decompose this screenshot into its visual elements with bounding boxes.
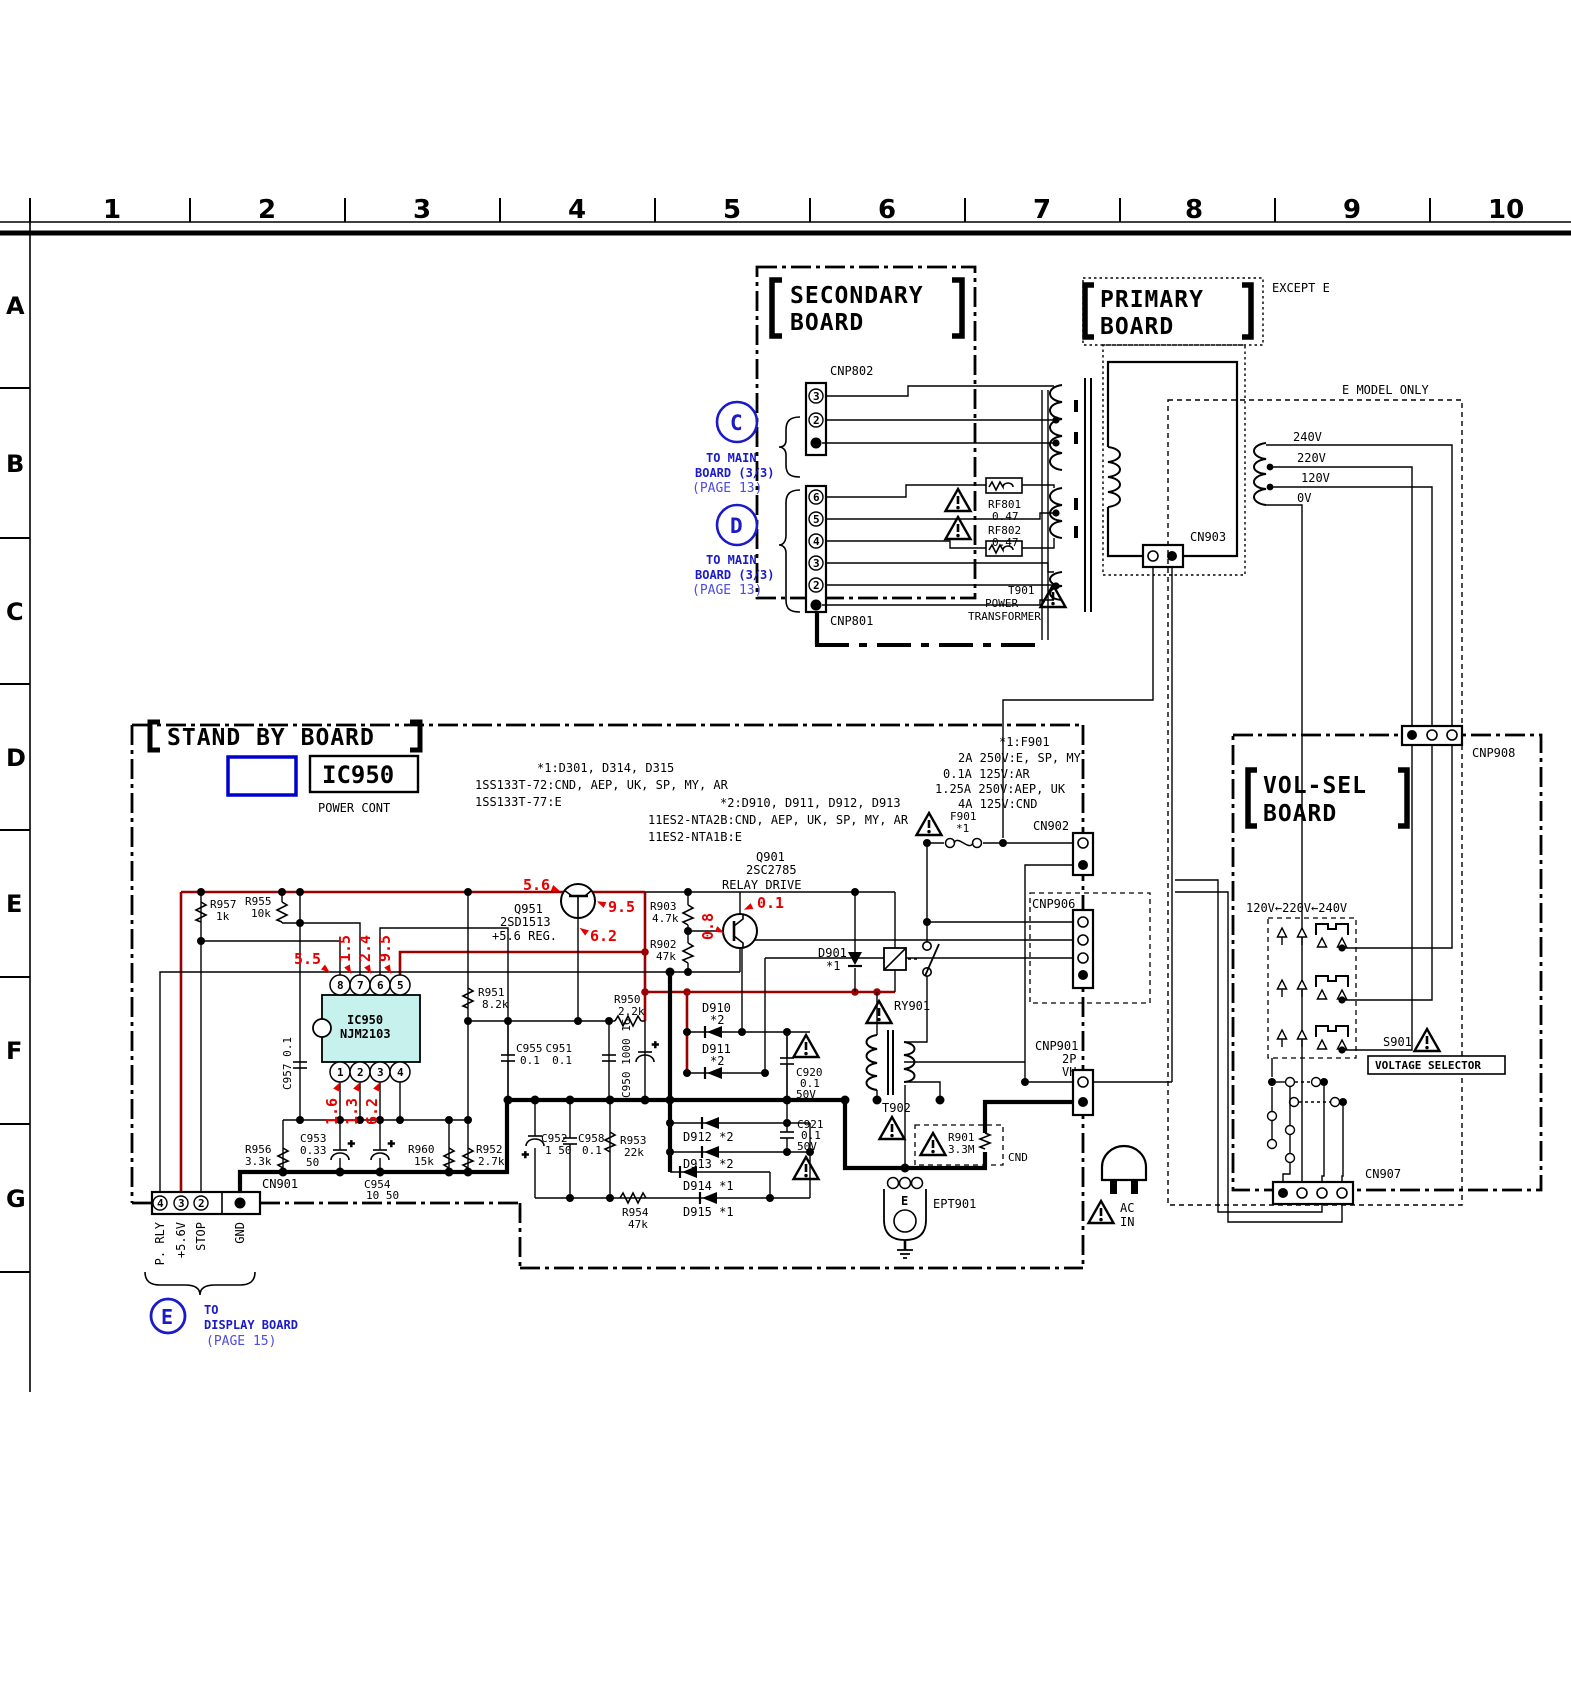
schematic-page: 1 2 3 4 5 6 7 8 9 10 A B C D E F G SECON… bbox=[0, 0, 1571, 1684]
callout-c-text2: BOARD (3/3) bbox=[695, 466, 774, 480]
callout-e-text: TO bbox=[204, 1303, 218, 1317]
f901-note: *1 bbox=[956, 822, 969, 835]
ry901-label: RY901 bbox=[894, 999, 930, 1013]
callout-c-text: TO MAIN bbox=[706, 451, 757, 465]
secondary-wires bbox=[822, 386, 1054, 640]
blue-marker-box bbox=[228, 757, 296, 795]
r901-value: 3.3M bbox=[948, 1143, 975, 1156]
ic950-chip: IC950 NJM2103 8 7 6 5 1 2 3 4 bbox=[313, 975, 420, 1082]
r903-value: 4.7k bbox=[652, 912, 679, 925]
standby-board: STAND BY BOARD IC950 POWER CONT *1:D301,… bbox=[132, 722, 1172, 1349]
col-label: 8 bbox=[1185, 195, 1203, 225]
meas-0.8: 0.8 bbox=[699, 913, 717, 940]
cn901-signal: GND bbox=[233, 1222, 247, 1244]
ac-in-label2: IN bbox=[1120, 1215, 1134, 1229]
callout-e-letter: E bbox=[161, 1305, 173, 1329]
note-line: 2A 250V:E, SP, MY bbox=[958, 751, 1082, 765]
q951-type: 2SD1513 bbox=[500, 915, 551, 929]
secondary-board-title2: BOARD bbox=[790, 310, 864, 336]
c958-value: 0.1 bbox=[582, 1144, 602, 1157]
cn901-connector: CN901 4 3 2 P. RLY +5.6V STOP GND bbox=[152, 1177, 298, 1265]
schematic-canvas: 1 2 3 4 5 6 7 8 9 10 A B C D E F G SECON… bbox=[0, 0, 1571, 1684]
tap-220v: 220V bbox=[1297, 451, 1326, 465]
col-label: 2 bbox=[258, 195, 276, 225]
row-label: C bbox=[6, 598, 24, 626]
callout-c: C TO MAIN BOARD (3/3) (PAGE 13) bbox=[692, 402, 800, 496]
s901-label: S901 bbox=[1383, 1035, 1412, 1049]
ac-in-label: AC bbox=[1120, 1201, 1134, 1215]
r902-value: 47k bbox=[656, 950, 676, 963]
ept901: E EPT901 bbox=[884, 1178, 976, 1259]
meas-6.2: 6.2 bbox=[363, 1098, 381, 1125]
power-cont-label: POWER CONT bbox=[318, 801, 390, 815]
cnp906-connector: CNP906 bbox=[1030, 893, 1150, 1003]
q951-role: +5.6 REG. bbox=[492, 929, 557, 943]
meas-5.5: 5.5 bbox=[294, 950, 321, 968]
cn901-signal: STOP bbox=[194, 1222, 208, 1251]
c952-value: 1 50 bbox=[545, 1144, 572, 1157]
c921-voltage: 50V bbox=[797, 1140, 817, 1153]
col-label: 9 bbox=[1343, 195, 1361, 225]
cnp801-pin: 2 bbox=[813, 579, 820, 592]
t901-label: T901 bbox=[1008, 584, 1035, 597]
callout-e: E TO DISPLAY BOARD (PAGE 15) bbox=[145, 1272, 298, 1349]
ept901-label: EPT901 bbox=[933, 1197, 976, 1211]
ic-pin: 4 bbox=[397, 1066, 404, 1079]
secondary-board: SECONDARY BOARD CNP802 3 2 CNP801 6 5 4 … bbox=[692, 267, 1091, 645]
cn907-label: CN907 bbox=[1365, 1167, 1401, 1181]
ic-pin: 5 bbox=[397, 979, 404, 992]
note-line: 0.1A 125V:AR bbox=[943, 767, 1030, 781]
callout-d-text: TO MAIN bbox=[706, 553, 757, 567]
cn903-label: CN903 bbox=[1190, 530, 1226, 544]
callout-d-text2: BOARD (3/3) bbox=[695, 568, 774, 582]
row-label: B bbox=[6, 450, 24, 478]
row-label: E bbox=[6, 890, 22, 918]
d901-label: D901 bbox=[818, 946, 847, 960]
e-model-only-tag: E MODEL ONLY bbox=[1342, 383, 1429, 397]
ic950-chip-label: IC950 bbox=[347, 1013, 383, 1027]
ac-inlet: AC IN bbox=[1089, 1146, 1147, 1229]
note-line: 1SS133T-77:E bbox=[475, 795, 562, 809]
note-line: 11ES2-NTA1B:E bbox=[648, 830, 742, 844]
note-line: 4A 125V:CND bbox=[958, 797, 1037, 811]
c957-label: C957 0.1 bbox=[281, 1037, 294, 1090]
r954-value: 47k bbox=[628, 1218, 648, 1231]
row-label: F bbox=[6, 1037, 22, 1065]
ic-pin: 3 bbox=[377, 1066, 384, 1079]
ic950-box-label: IC950 bbox=[322, 761, 394, 789]
row-label: A bbox=[6, 292, 25, 320]
callout-e-page: (PAGE 15) bbox=[206, 1334, 276, 1349]
meas-1.3: 1.3 bbox=[343, 1098, 361, 1125]
notes: *1:D301, D314, D315 1SS133T-72:CND, AEP,… bbox=[475, 735, 1082, 844]
t901-label3: TRANSFORMER bbox=[968, 610, 1041, 623]
cnp801-label: CNP801 bbox=[830, 614, 873, 628]
meas-9.5: 9.5 bbox=[376, 935, 394, 962]
note-line: *2:D910, D911, D912, D913 bbox=[720, 796, 901, 810]
note-line: 1SS133T-72:CND, AEP, UK, SP, MY, AR bbox=[475, 778, 729, 792]
callout-d-page: (PAGE 13) bbox=[692, 583, 762, 598]
r953-value: 22k bbox=[624, 1146, 644, 1159]
cn901-pin: 4 bbox=[157, 1197, 164, 1210]
t901-label2: POWER bbox=[985, 597, 1018, 610]
standby-title: STAND BY BOARD bbox=[167, 725, 375, 751]
tap-240v: 240V bbox=[1293, 430, 1322, 444]
c950-label: C950 1000 16 bbox=[620, 1019, 633, 1098]
r957-value: 1k bbox=[216, 910, 230, 923]
primary-board-title: PRIMARY bbox=[1100, 287, 1204, 313]
cnp901-label: CNP901 bbox=[1035, 1039, 1078, 1053]
svg-text:+: + bbox=[522, 1148, 529, 1161]
ic-pin: 2 bbox=[357, 1066, 364, 1079]
meas-5.6: 5.6 bbox=[523, 876, 550, 894]
note-line: *1:D301, D314, D315 bbox=[537, 761, 674, 775]
voltage-range-label: 120V←220V←240V bbox=[1246, 901, 1347, 915]
cnp802-label: CNP802 bbox=[830, 364, 873, 378]
cn901-pin: 3 bbox=[178, 1197, 185, 1210]
col-label: 4 bbox=[568, 195, 586, 225]
q901-type: 2SC2785 bbox=[746, 863, 797, 877]
r950-value: 2.2k bbox=[618, 1005, 645, 1018]
note-line: 11ES2-NTA2B:CND, AEP, UK, SP, MY, AR bbox=[648, 813, 909, 827]
cnp906-label: CNP906 bbox=[1032, 897, 1075, 911]
cn901-signal: +5.6V bbox=[174, 1222, 188, 1258]
d912-label: D912 *2 bbox=[683, 1130, 734, 1144]
cnp801-pin: 6 bbox=[813, 491, 820, 504]
callout-d: D TO MAIN BOARD (3/3) (PAGE 13) bbox=[692, 490, 800, 612]
ic950-chip-type: NJM2103 bbox=[340, 1027, 391, 1041]
volsel-title2: BOARD bbox=[1263, 801, 1337, 827]
note-line: 1.25A 250V:AEP, UK bbox=[935, 782, 1066, 796]
meas-6.2: 6.2 bbox=[590, 927, 617, 945]
cnp801-pin: 3 bbox=[813, 557, 820, 570]
c951-value: 0.1 bbox=[552, 1054, 572, 1067]
svg-text:+: + bbox=[388, 1137, 395, 1150]
col-label: 7 bbox=[1033, 195, 1051, 225]
c920-voltage: 50V bbox=[796, 1088, 816, 1101]
primary-wires bbox=[1108, 362, 1237, 556]
ic-pin: 1 bbox=[337, 1066, 344, 1079]
volsel-board: VOL-SEL BOARD CNP908 120V←220V←240V S901… bbox=[1175, 726, 1541, 1222]
primary-board-title2: BOARD bbox=[1100, 314, 1174, 340]
note-line: *1:F901 bbox=[999, 735, 1050, 749]
svg-text:+: + bbox=[348, 1137, 355, 1150]
d901-note: *1 bbox=[826, 959, 840, 973]
t902-label: T902 bbox=[882, 1101, 911, 1115]
cnp801-pin: 5 bbox=[813, 513, 820, 526]
ic-pin: 8 bbox=[337, 979, 344, 992]
callout-e-text2: DISPLAY BOARD bbox=[204, 1318, 298, 1332]
d910-note: *2 bbox=[710, 1013, 724, 1027]
d915-label: D915 *1 bbox=[683, 1205, 734, 1219]
meas-9.5: 9.5 bbox=[608, 898, 635, 916]
ic-pin: 7 bbox=[357, 979, 364, 992]
c955-value: 0.1 bbox=[520, 1054, 540, 1067]
cn901-label: CN901 bbox=[262, 1177, 298, 1191]
callout-c-page: (PAGE 13) bbox=[692, 481, 762, 496]
d914-label: D914 *1 bbox=[683, 1179, 734, 1193]
c953-voltage: 50 bbox=[306, 1156, 319, 1169]
secondary-board-title: SECONDARY bbox=[790, 283, 924, 309]
cnp801-pin: 4 bbox=[813, 535, 820, 548]
callout-d-letter: D bbox=[730, 514, 743, 538]
col-label: 5 bbox=[723, 195, 741, 225]
col-label: 6 bbox=[878, 195, 896, 225]
rf802-value: 0.47 bbox=[992, 536, 1019, 549]
cnp908-label: CNP908 bbox=[1472, 746, 1515, 760]
r951-value: 8.2k bbox=[482, 998, 509, 1011]
row-label: G bbox=[6, 1185, 26, 1213]
r955-value: 10k bbox=[251, 907, 271, 920]
volsel-title: VOL-SEL bbox=[1263, 773, 1367, 799]
q901-role: RELAY DRIVE bbox=[722, 878, 801, 892]
q901-label: Q901 bbox=[756, 850, 785, 864]
cn901-pin: 2 bbox=[198, 1197, 205, 1210]
callout-c-letter: C bbox=[730, 411, 743, 435]
t902-transformer: T902 bbox=[867, 1030, 915, 1139]
r956-value: 3.3k bbox=[245, 1155, 272, 1168]
cn901-signal: P. RLY bbox=[153, 1221, 167, 1265]
cn902-label: CN902 bbox=[1033, 819, 1069, 833]
cnp901-2p: 2P bbox=[1062, 1052, 1076, 1066]
tap-0v: 0V bbox=[1297, 491, 1311, 505]
col-label: 1 bbox=[103, 195, 121, 225]
svg-text:+: + bbox=[652, 1038, 659, 1051]
meas-1.6: 1.6 bbox=[323, 1098, 341, 1125]
row-label: D bbox=[6, 744, 26, 772]
q951-label: Q951 bbox=[514, 902, 543, 916]
t901-transformer: T901 POWER TRANSFORMER bbox=[968, 378, 1091, 623]
cnp802-pin: 2 bbox=[813, 414, 820, 427]
r952-value: 2.7k bbox=[478, 1155, 505, 1168]
meas-1.5: 1.5 bbox=[336, 935, 354, 962]
ept901-e-mark: E bbox=[901, 1194, 908, 1208]
d911-note: *2 bbox=[710, 1054, 724, 1068]
except-e-tag: EXCEPT E bbox=[1272, 281, 1330, 295]
ic-pin: 6 bbox=[377, 979, 384, 992]
r960-value: 15k bbox=[414, 1155, 434, 1168]
meas-2.4: 2.4 bbox=[356, 935, 374, 962]
col-label: 3 bbox=[413, 195, 431, 225]
meas-0.1: 0.1 bbox=[757, 894, 784, 912]
cnd-label: CND bbox=[1008, 1151, 1028, 1164]
r901-block: R901 3.3M CND bbox=[915, 1125, 1028, 1165]
selector-contacts bbox=[1268, 1058, 1348, 1182]
tap-120v: 120V bbox=[1301, 471, 1330, 485]
cnp802-pin: 3 bbox=[813, 390, 820, 403]
col-label: 10 bbox=[1488, 195, 1524, 225]
voltage-selector-label: VOLTAGE SELECTOR bbox=[1375, 1059, 1481, 1072]
rf801-value: 0.47 bbox=[992, 510, 1019, 523]
c954-value: 10 50 bbox=[366, 1189, 399, 1202]
